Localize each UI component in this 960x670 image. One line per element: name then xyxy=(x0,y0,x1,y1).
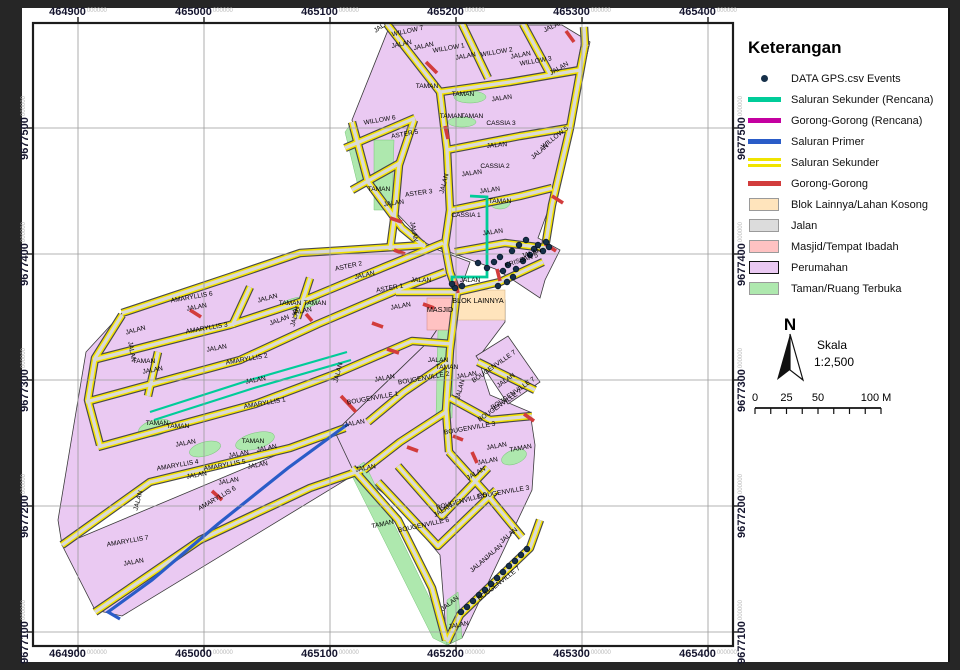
x-axis-label: 465400000000 xyxy=(679,6,737,18)
legend-label: Taman/Ruang Terbuka xyxy=(791,283,901,295)
gps-point xyxy=(506,563,512,569)
legend-items: DATA GPS.csv EventsSaluran Sekunder (Ren… xyxy=(746,68,946,299)
map-label: TAMAN xyxy=(436,364,459,371)
map-label: TAMAN xyxy=(368,186,391,193)
gps-point xyxy=(509,248,515,254)
map-label: TAMAN xyxy=(167,423,190,430)
legend-swatch-taman xyxy=(749,282,779,295)
x-axis-label: 465100000000 xyxy=(301,6,359,18)
x-axis-label: 465400000000 xyxy=(679,648,737,660)
scale-bar-label: 0 xyxy=(752,392,758,404)
map-label: CASSIA 3 xyxy=(486,120,516,127)
legend-item-gps-events: DATA GPS.csv Events xyxy=(746,68,946,89)
legend-swatch-gorong-gorong xyxy=(748,181,781,186)
gps-point xyxy=(459,283,465,289)
map-label: TAMAN xyxy=(279,300,302,307)
gps-point xyxy=(523,237,529,243)
legend-label: Blok Lainnya/Lahan Kosong xyxy=(791,199,928,211)
y-axis-label: 9677300000000 xyxy=(736,347,748,412)
legend-item-jalan: Jalan xyxy=(746,215,946,236)
legend-swatch-saluran-sekunder xyxy=(748,158,781,167)
gps-point xyxy=(518,552,524,558)
scale-bar-label: 25 xyxy=(780,392,792,404)
scale-bar-labels: 02550100 M xyxy=(752,392,891,404)
x-axis-label: 465300000000 xyxy=(553,648,611,660)
scale-bar: Skala 1:2,500 02550100 M xyxy=(752,338,891,414)
map-label: TAMAN xyxy=(416,83,439,90)
map-label: TAMAN xyxy=(146,420,169,427)
y-axis-label: 9677100000000 xyxy=(19,599,31,664)
legend-label: Saluran Primer xyxy=(791,136,864,148)
gps-point xyxy=(464,604,470,610)
legend-item-saluran-sekunder: Saluran Sekunder xyxy=(746,152,946,173)
scale-bar-label: 100 M xyxy=(861,392,892,404)
gps-point xyxy=(512,558,518,564)
gps-point xyxy=(500,268,506,274)
landuse-fills xyxy=(58,25,590,645)
gps-dot-icon xyxy=(761,75,768,82)
map-label: TAMAN xyxy=(440,113,463,120)
legend-item-masjid: Masjid/Tempat Ibadah xyxy=(746,236,946,257)
gps-point xyxy=(546,244,552,250)
map-label: CASSIA 1 xyxy=(451,212,481,219)
legend-item-blok-lainnya: Blok Lainnya/Lahan Kosong xyxy=(746,194,946,215)
gps-point xyxy=(510,274,516,280)
map-label: TAMAN xyxy=(304,300,327,307)
map-label: JALAN xyxy=(428,357,449,364)
scale-ratio: 1:2,500 xyxy=(814,355,854,369)
legend-label: Gorong-Gorong xyxy=(791,178,868,190)
map-label: TAMAN xyxy=(133,358,156,365)
legend-label: Gorong-Gorong (Rencana) xyxy=(791,115,922,127)
legend-item-perumahan: Perumahan xyxy=(746,257,946,278)
map-label: MASJID xyxy=(427,305,453,314)
map-label: BLOK LAINNYA xyxy=(452,296,504,305)
map-label: JALAN xyxy=(411,277,432,284)
legend-label: Jalan xyxy=(791,220,817,232)
x-axis-label: 465200000000 xyxy=(427,6,485,18)
legend-swatch-perumahan xyxy=(749,261,779,274)
map-canvas: JALANWILLOW 7JALANJALANWILLOW 1JALANWILL… xyxy=(33,17,733,646)
legend-swatch-saluran-sekunder-rencana xyxy=(748,97,781,102)
map-label: TAMAN xyxy=(489,198,512,205)
legend-item-saluran-sekunder-rencana: Saluran Sekunder (Rencana) xyxy=(746,89,946,110)
legend: Keterangan DATA GPS.csv EventsSaluran Se… xyxy=(746,38,946,299)
north-label: N xyxy=(784,315,796,334)
legend-title: Keterangan xyxy=(748,38,946,58)
map-label: TAMAN xyxy=(242,438,265,445)
y-axis-label: 9677200000000 xyxy=(19,473,31,538)
gps-point xyxy=(543,239,549,245)
legend-swatch-gorong-gorong-rencana xyxy=(748,118,781,123)
gps-point xyxy=(495,283,501,289)
y-axis-label: 9677500000000 xyxy=(19,95,31,160)
legend-label: Saluran Sekunder (Rencana) xyxy=(791,94,933,106)
y-axis-label: 9677100000000 xyxy=(736,599,748,664)
north-arrow-left xyxy=(777,334,790,380)
x-axis-label: 465100000000 xyxy=(301,648,359,660)
x-axis-label: 465200000000 xyxy=(427,648,485,660)
gps-point xyxy=(504,279,510,285)
legend-item-taman: Taman/Ruang Terbuka xyxy=(746,278,946,299)
map-label: JALAN xyxy=(460,277,481,284)
y-axis-label: 9677300000000 xyxy=(19,347,31,412)
x-axis-label: 465300000000 xyxy=(553,6,611,18)
legend-swatch-blok-lainnya xyxy=(749,198,779,211)
legend-item-gorong-gorong: Gorong-Gorong xyxy=(746,173,946,194)
map-label: CASSIA 2 xyxy=(480,163,510,170)
legend-label: DATA GPS.csv Events xyxy=(791,73,901,85)
gps-point xyxy=(458,609,464,615)
gps-point xyxy=(491,259,497,265)
legend-label: Saluran Sekunder xyxy=(791,157,879,169)
legend-item-gorong-gorong-rencana: Gorong-Gorong (Rencana) xyxy=(746,110,946,131)
scale-title: Skala xyxy=(817,338,847,352)
legend-label: Perumahan xyxy=(791,262,848,274)
legend-label: Masjid/Tempat Ibadah xyxy=(791,241,899,253)
legend-item-saluran-primer: Saluran Primer xyxy=(746,131,946,152)
y-axis-label: 9677400000000 xyxy=(19,221,31,286)
north-arrow-icon: N xyxy=(777,315,803,380)
map-label: TAMAN xyxy=(452,91,475,98)
x-axis-label: 464900000000 xyxy=(49,648,107,660)
y-axis-label: 9677200000000 xyxy=(736,473,748,538)
x-axis-label: 465000000000 xyxy=(175,648,233,660)
x-axis-label: 464900000000 xyxy=(49,6,107,18)
gps-point xyxy=(497,254,503,260)
gps-point xyxy=(470,598,476,604)
gps-point xyxy=(484,265,490,271)
map-label: TAMAN xyxy=(461,113,484,120)
scale-bar-label: 50 xyxy=(812,392,824,404)
gps-point xyxy=(475,260,481,266)
legend-swatch-jalan xyxy=(749,219,779,232)
gps-point xyxy=(513,266,519,272)
x-axis-label: 465000000000 xyxy=(175,6,233,18)
gps-point xyxy=(524,546,530,552)
legend-swatch-masjid xyxy=(749,240,779,253)
legend-swatch-saluran-primer xyxy=(748,139,781,144)
gps-point xyxy=(449,281,455,287)
north-arrow-right xyxy=(790,334,803,380)
gps-point xyxy=(516,242,522,248)
